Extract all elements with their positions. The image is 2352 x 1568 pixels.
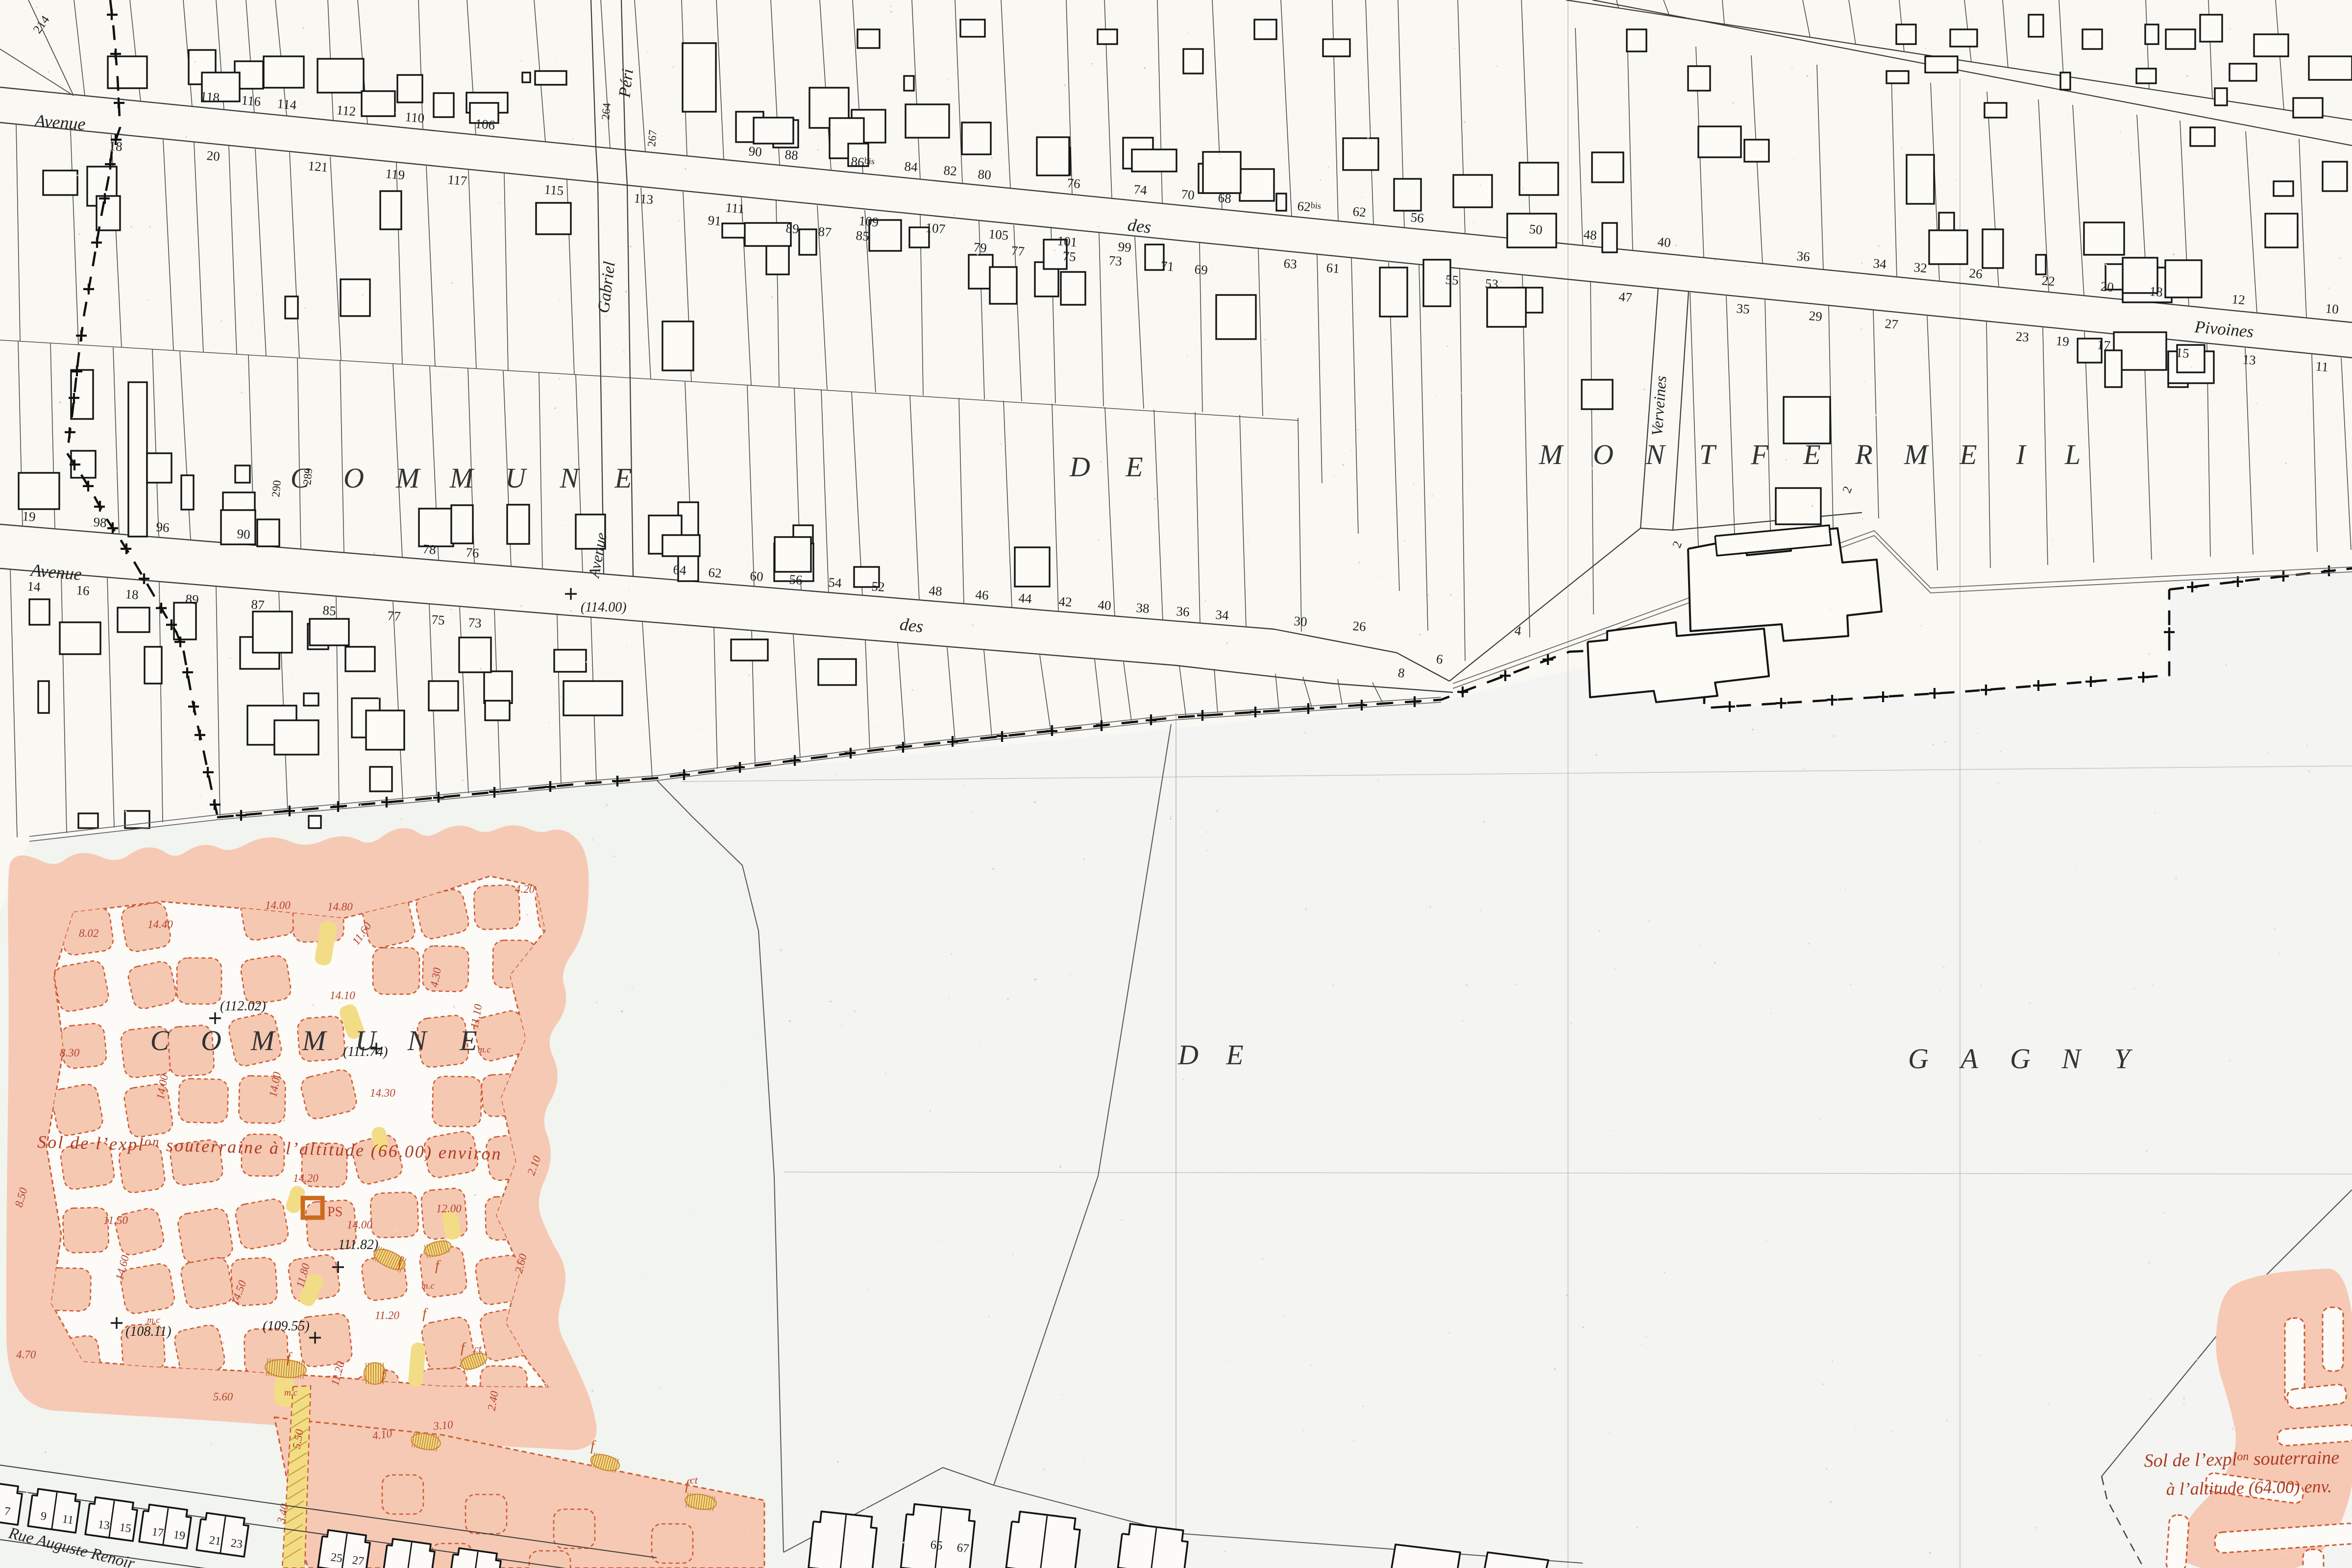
svg-text:70: 70	[1180, 187, 1195, 202]
svg-text:T: T	[1699, 439, 1717, 470]
svg-text:27: 27	[351, 1554, 365, 1568]
svg-text:19: 19	[22, 509, 36, 524]
svg-text:(109.55): (109.55)	[263, 1319, 310, 1334]
svg-text:38: 38	[1136, 600, 1150, 616]
svg-text:112: 112	[336, 102, 356, 119]
svg-text:22: 22	[2041, 273, 2056, 289]
svg-text:82: 82	[943, 163, 957, 178]
svg-text:I: I	[2015, 439, 2027, 470]
svg-text:107: 107	[925, 220, 946, 236]
svg-text:80: 80	[977, 167, 992, 182]
svg-text:85: 85	[322, 603, 337, 618]
svg-text:25: 25	[330, 1551, 343, 1565]
svg-text:46: 46	[975, 587, 989, 603]
svg-text:N: N	[560, 462, 581, 494]
svg-text:des: des	[1127, 215, 1152, 237]
svg-text:111.82): 111.82)	[338, 1237, 378, 1252]
svg-text:56: 56	[789, 572, 803, 588]
svg-text:113: 113	[633, 191, 654, 207]
svg-text:53: 53	[1484, 276, 1499, 292]
svg-text:75: 75	[1062, 248, 1077, 264]
svg-text:114: 114	[276, 96, 297, 112]
svg-text:E: E	[1125, 451, 1143, 483]
svg-text:48: 48	[1583, 227, 1597, 243]
svg-text:48: 48	[929, 583, 943, 599]
svg-text:16: 16	[76, 583, 90, 598]
svg-text:A: A	[1959, 1043, 1978, 1075]
svg-text:m.c: m.c	[147, 1315, 160, 1325]
svg-text:118: 118	[199, 89, 220, 105]
svg-text:73: 73	[1108, 253, 1123, 269]
svg-text:(112.02): (112.02)	[220, 999, 266, 1014]
svg-text:4.20: 4.20	[515, 883, 535, 895]
svg-text:O: O	[343, 462, 364, 494]
svg-text:19: 19	[2055, 333, 2070, 349]
svg-text:10: 10	[2325, 301, 2339, 317]
svg-text:11: 11	[2315, 359, 2329, 374]
svg-text:19: 19	[172, 1528, 186, 1543]
svg-text:90: 90	[237, 526, 251, 542]
svg-text:O: O	[1593, 439, 1614, 470]
svg-text:R: R	[1855, 439, 1872, 470]
svg-text:21: 21	[208, 1534, 221, 1548]
svg-text:67: 67	[956, 1541, 970, 1555]
svg-text:109: 109	[858, 213, 879, 229]
svg-text:14: 14	[27, 579, 42, 594]
svg-text:47: 47	[1618, 289, 1633, 305]
svg-text:117: 117	[447, 172, 467, 188]
svg-text:L: L	[2064, 439, 2081, 470]
svg-text:77: 77	[1010, 243, 1025, 259]
svg-text:G: G	[1908, 1043, 1929, 1075]
svg-text:290: 290	[269, 480, 283, 498]
svg-text:34: 34	[1872, 256, 1887, 271]
svg-text:63: 63	[1283, 256, 1298, 271]
svg-text:116: 116	[241, 93, 261, 109]
svg-text:N: N	[2061, 1043, 2082, 1075]
svg-text:F: F	[1750, 439, 1768, 470]
svg-text:E: E	[1959, 439, 1977, 470]
svg-text:87: 87	[817, 224, 832, 240]
svg-text:M: M	[1904, 439, 1929, 470]
svg-text:8.30: 8.30	[60, 1047, 80, 1059]
svg-text:52: 52	[871, 579, 885, 594]
svg-text:111: 111	[725, 200, 745, 216]
svg-text:15: 15	[119, 1521, 132, 1535]
svg-text:99: 99	[1117, 239, 1132, 255]
svg-text:15: 15	[2175, 345, 2190, 361]
svg-text:87: 87	[251, 597, 265, 612]
svg-text:18: 18	[2149, 284, 2163, 299]
svg-text:96: 96	[156, 519, 170, 535]
svg-text:13: 13	[97, 1518, 110, 1532]
svg-text:54: 54	[828, 575, 843, 590]
svg-text:17: 17	[2096, 337, 2111, 353]
svg-text:101: 101	[1056, 233, 1078, 249]
svg-text:à l’altitude (64.00) env.: à l’altitude (64.00) env.	[2166, 1476, 2332, 1499]
svg-text:14.00: 14.00	[265, 899, 291, 911]
svg-text:E: E	[1803, 439, 1820, 470]
svg-text:36: 36	[1176, 604, 1190, 619]
svg-text:N: N	[1645, 439, 1666, 470]
svg-text:90: 90	[748, 144, 762, 159]
svg-text:M: M	[449, 462, 475, 494]
svg-text:des: des	[899, 614, 925, 637]
svg-text:65: 65	[930, 1538, 943, 1552]
svg-text:115: 115	[543, 182, 564, 198]
svg-text:ct: ct	[690, 1474, 698, 1486]
svg-text:89: 89	[185, 591, 199, 607]
svg-text:74: 74	[1133, 182, 1148, 197]
svg-text:26: 26	[1968, 266, 1983, 281]
svg-text:62: 62	[1352, 204, 1367, 220]
svg-text:26: 26	[1352, 618, 1367, 634]
svg-text:35: 35	[1736, 301, 1750, 317]
svg-text:60: 60	[750, 568, 764, 584]
svg-text:91: 91	[707, 213, 722, 228]
svg-text:20: 20	[206, 148, 220, 164]
svg-text:119: 119	[385, 166, 405, 182]
svg-text:11.50: 11.50	[103, 1214, 128, 1226]
svg-text:U: U	[355, 1025, 378, 1056]
svg-text:105: 105	[988, 226, 1009, 243]
svg-text:32: 32	[1913, 260, 1928, 275]
svg-text:64: 64	[673, 562, 687, 578]
svg-text:Avenue: Avenue	[33, 111, 86, 134]
svg-text:E: E	[614, 462, 632, 494]
svg-text:77: 77	[387, 608, 401, 624]
svg-text:M: M	[395, 462, 421, 494]
svg-text:N: N	[407, 1025, 428, 1056]
svg-text:14.80: 14.80	[327, 901, 353, 913]
svg-text:14.00: 14.00	[347, 1219, 372, 1231]
svg-text:D: D	[1177, 1039, 1199, 1071]
svg-text:42: 42	[1058, 594, 1073, 610]
svg-text:18: 18	[125, 587, 139, 602]
svg-text:Péri: Péri	[615, 68, 637, 99]
svg-text:G: G	[2010, 1043, 2031, 1075]
svg-text:11.20: 11.20	[375, 1309, 400, 1322]
svg-text:50: 50	[1528, 221, 1543, 237]
svg-text:23: 23	[2015, 329, 2030, 344]
svg-text:14.10: 14.10	[330, 989, 355, 1002]
svg-text:110: 110	[404, 109, 425, 125]
svg-text:m.c: m.c	[284, 1388, 297, 1398]
svg-text:E: E	[1225, 1039, 1243, 1071]
svg-text:M: M	[1539, 439, 1564, 470]
svg-text:5.60: 5.60	[213, 1391, 233, 1403]
svg-text:85: 85	[855, 228, 870, 244]
svg-text:71: 71	[1160, 258, 1175, 274]
svg-text:C: C	[291, 462, 310, 494]
svg-text:4.70: 4.70	[16, 1348, 36, 1361]
svg-text:40: 40	[1098, 597, 1112, 613]
svg-text:62: 62	[708, 565, 722, 581]
svg-text:68: 68	[1217, 190, 1232, 206]
svg-text:29: 29	[1808, 308, 1823, 324]
svg-text:76: 76	[1066, 175, 1081, 191]
svg-text:98: 98	[93, 514, 107, 530]
svg-text:44: 44	[1018, 590, 1033, 606]
svg-text:ct: ct	[474, 1343, 482, 1355]
svg-text:3.10: 3.10	[432, 1419, 454, 1433]
svg-text:56: 56	[1410, 210, 1424, 225]
svg-text:75: 75	[431, 612, 445, 628]
svg-text:PS: PS	[327, 1204, 343, 1220]
svg-text:89: 89	[785, 220, 800, 236]
svg-text:m.c: m.c	[478, 1045, 491, 1055]
svg-text:88: 88	[784, 147, 799, 163]
svg-text:(114.00): (114.00)	[581, 600, 627, 615]
svg-text:17: 17	[151, 1525, 164, 1540]
svg-text:(108.11): (108.11)	[125, 1324, 171, 1339]
svg-text:27: 27	[1884, 316, 1899, 332]
svg-text:40: 40	[1657, 234, 1671, 250]
svg-text:12.00: 12.00	[436, 1202, 462, 1215]
svg-text:E: E	[459, 1025, 477, 1056]
svg-text:84: 84	[904, 159, 918, 174]
svg-text:69: 69	[1194, 262, 1208, 277]
svg-text:C: C	[150, 1025, 170, 1056]
svg-text:34: 34	[1215, 607, 1230, 623]
svg-text:121: 121	[307, 158, 328, 174]
svg-text:14.20: 14.20	[293, 1172, 318, 1184]
svg-text:14.30: 14.30	[370, 1087, 395, 1099]
svg-text:73: 73	[468, 615, 482, 631]
svg-text:106: 106	[474, 116, 495, 132]
svg-text:61: 61	[1325, 260, 1340, 276]
svg-text:264: 264	[599, 102, 613, 120]
svg-text:30: 30	[1294, 613, 1308, 629]
svg-text:M: M	[302, 1025, 327, 1056]
svg-text:11: 11	[61, 1513, 74, 1527]
svg-text:78: 78	[422, 541, 437, 557]
svg-text:36: 36	[1796, 248, 1811, 264]
svg-text:13: 13	[2242, 352, 2256, 367]
svg-text:D: D	[1069, 451, 1090, 483]
svg-text:79: 79	[973, 240, 987, 255]
svg-text:76: 76	[465, 545, 480, 561]
svg-text:8.02: 8.02	[79, 927, 98, 939]
svg-text:M: M	[250, 1025, 276, 1056]
svg-text:23: 23	[230, 1537, 243, 1551]
svg-text:U: U	[505, 462, 528, 494]
svg-text:m.c: m.c	[421, 1281, 435, 1291]
svg-text:14.40: 14.40	[147, 918, 173, 931]
svg-text:55: 55	[1445, 272, 1459, 288]
svg-text:20: 20	[2100, 279, 2114, 294]
svg-text:267: 267	[645, 129, 659, 147]
svg-text:12: 12	[2231, 292, 2246, 307]
svg-text:O: O	[201, 1025, 221, 1056]
